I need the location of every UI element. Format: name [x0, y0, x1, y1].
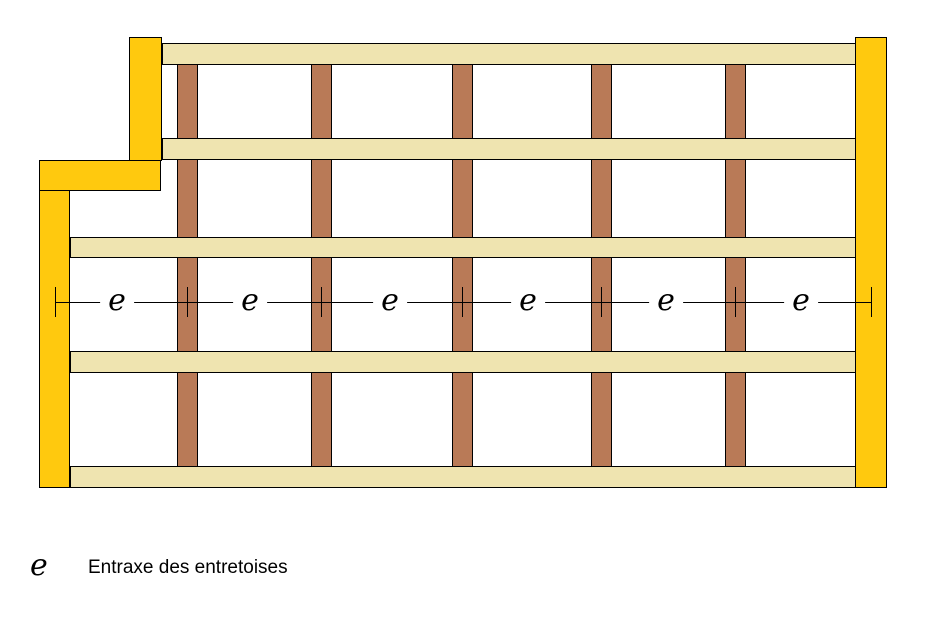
dimension-tick-7 [871, 287, 872, 317]
brace-row4-col4 [591, 372, 612, 467]
brace-row1-col5 [725, 64, 746, 139]
brace-row1-col1 [177, 64, 198, 139]
brace-row1-col4 [591, 64, 612, 139]
beam-1 [162, 43, 856, 65]
brace-row2-col4 [591, 159, 612, 238]
dimension-tick-5 [601, 287, 602, 317]
brace-row2-col3 [452, 159, 473, 238]
brace-row4-col2 [311, 372, 332, 467]
right-post [855, 37, 887, 488]
dimension-tick-2 [187, 287, 188, 317]
dimension-label-6: e [784, 286, 818, 316]
brace-row4-col1 [177, 372, 198, 467]
brace-row1-col2 [311, 64, 332, 139]
dimension-label-3: e [373, 286, 407, 316]
left-post-lower [39, 190, 70, 488]
framing-diagram: eeeeee e Entraxe des entretoises [0, 0, 936, 634]
left-post-ledge [39, 160, 161, 191]
beam-2 [162, 138, 856, 160]
beam-3 [70, 237, 856, 258]
brace-row2-col5 [725, 159, 746, 238]
dimension-label-5: e [649, 286, 683, 316]
legend-symbol-e: e [30, 551, 48, 581]
dimension-tick-1 [55, 287, 56, 317]
dimension-tick-6 [735, 287, 736, 317]
beam-5 [70, 466, 856, 488]
brace-row2-col1 [177, 159, 198, 238]
brace-row1-col3 [452, 64, 473, 139]
dimension-label-2: e [233, 286, 267, 316]
dimension-label-1: e [100, 286, 134, 316]
dimension-line [55, 302, 871, 303]
left-post-top [129, 37, 162, 161]
dimension-tick-3 [321, 287, 322, 317]
brace-row4-col5 [725, 372, 746, 467]
legend-label: Entraxe des entretoises [88, 557, 288, 579]
brace-row4-col3 [452, 372, 473, 467]
dimension-tick-4 [462, 287, 463, 317]
dimension-label-4: e [511, 286, 545, 316]
beam-4 [70, 351, 856, 373]
brace-row2-col2 [311, 159, 332, 238]
